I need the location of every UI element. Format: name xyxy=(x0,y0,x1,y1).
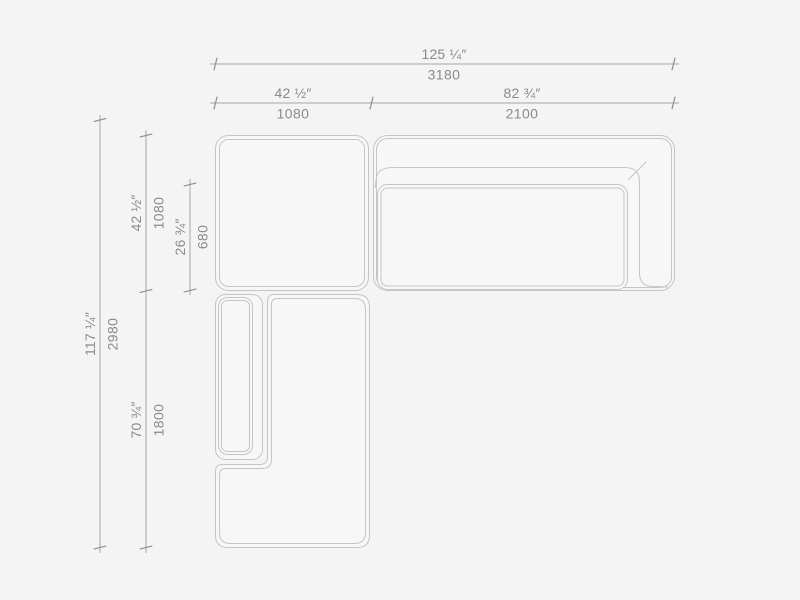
dim-seat-depth-mm: 680 xyxy=(195,225,211,250)
dim-total-width: 125 ¼″ 3180 xyxy=(210,46,679,83)
dim-top-depth-inches: 42 ½″ xyxy=(128,194,144,231)
dim-right-width-inches: 82 ¾″ xyxy=(503,85,540,101)
corner-module xyxy=(216,136,369,291)
dim-chaise-length-inches: 70 ¾″ xyxy=(128,401,144,438)
dim-total-depth-inches: 117 ¼″ xyxy=(82,312,98,356)
sofa-module xyxy=(374,136,675,291)
drawing-canvas: 125 ¼″ 3180 42 ½″ 1080 82 ¾″ 2100 117 ¼″… xyxy=(0,0,800,600)
dim-section-widths: 42 ½″ 1080 82 ¾″ 2100 xyxy=(210,85,679,122)
dim-total-depth: 117 ¼″ 2980 xyxy=(82,115,121,553)
dim-chaise-length-mm: 1800 xyxy=(151,404,167,437)
dim-seat-depth: 26 ¾″ 680 xyxy=(172,179,211,295)
chaise-armrest-cushion xyxy=(219,298,253,455)
dim-section-depths: 42 ½″ 1080 70 ¾″ 1800 xyxy=(128,130,167,553)
corner-module-outline xyxy=(216,136,369,291)
dim-left-width-mm: 1080 xyxy=(277,106,310,122)
dim-seat-depth-inches: 26 ¾″ xyxy=(172,218,188,255)
dim-total-depth-mm: 2980 xyxy=(105,318,121,351)
dim-total-width-inches: 125 ¼″ xyxy=(421,46,466,62)
dim-total-width-mm: 3180 xyxy=(428,67,461,83)
sofa-dimension-drawing: 125 ¼″ 3180 42 ½″ 1080 82 ¾″ 2100 117 ¼″… xyxy=(0,0,800,600)
dim-right-width-mm: 2100 xyxy=(506,106,539,122)
chaise-module xyxy=(216,295,370,548)
dim-left-width-inches: 42 ½″ xyxy=(274,85,311,101)
dim-top-depth-mm: 1080 xyxy=(151,197,167,230)
sofa-seat-cushion xyxy=(378,185,628,290)
